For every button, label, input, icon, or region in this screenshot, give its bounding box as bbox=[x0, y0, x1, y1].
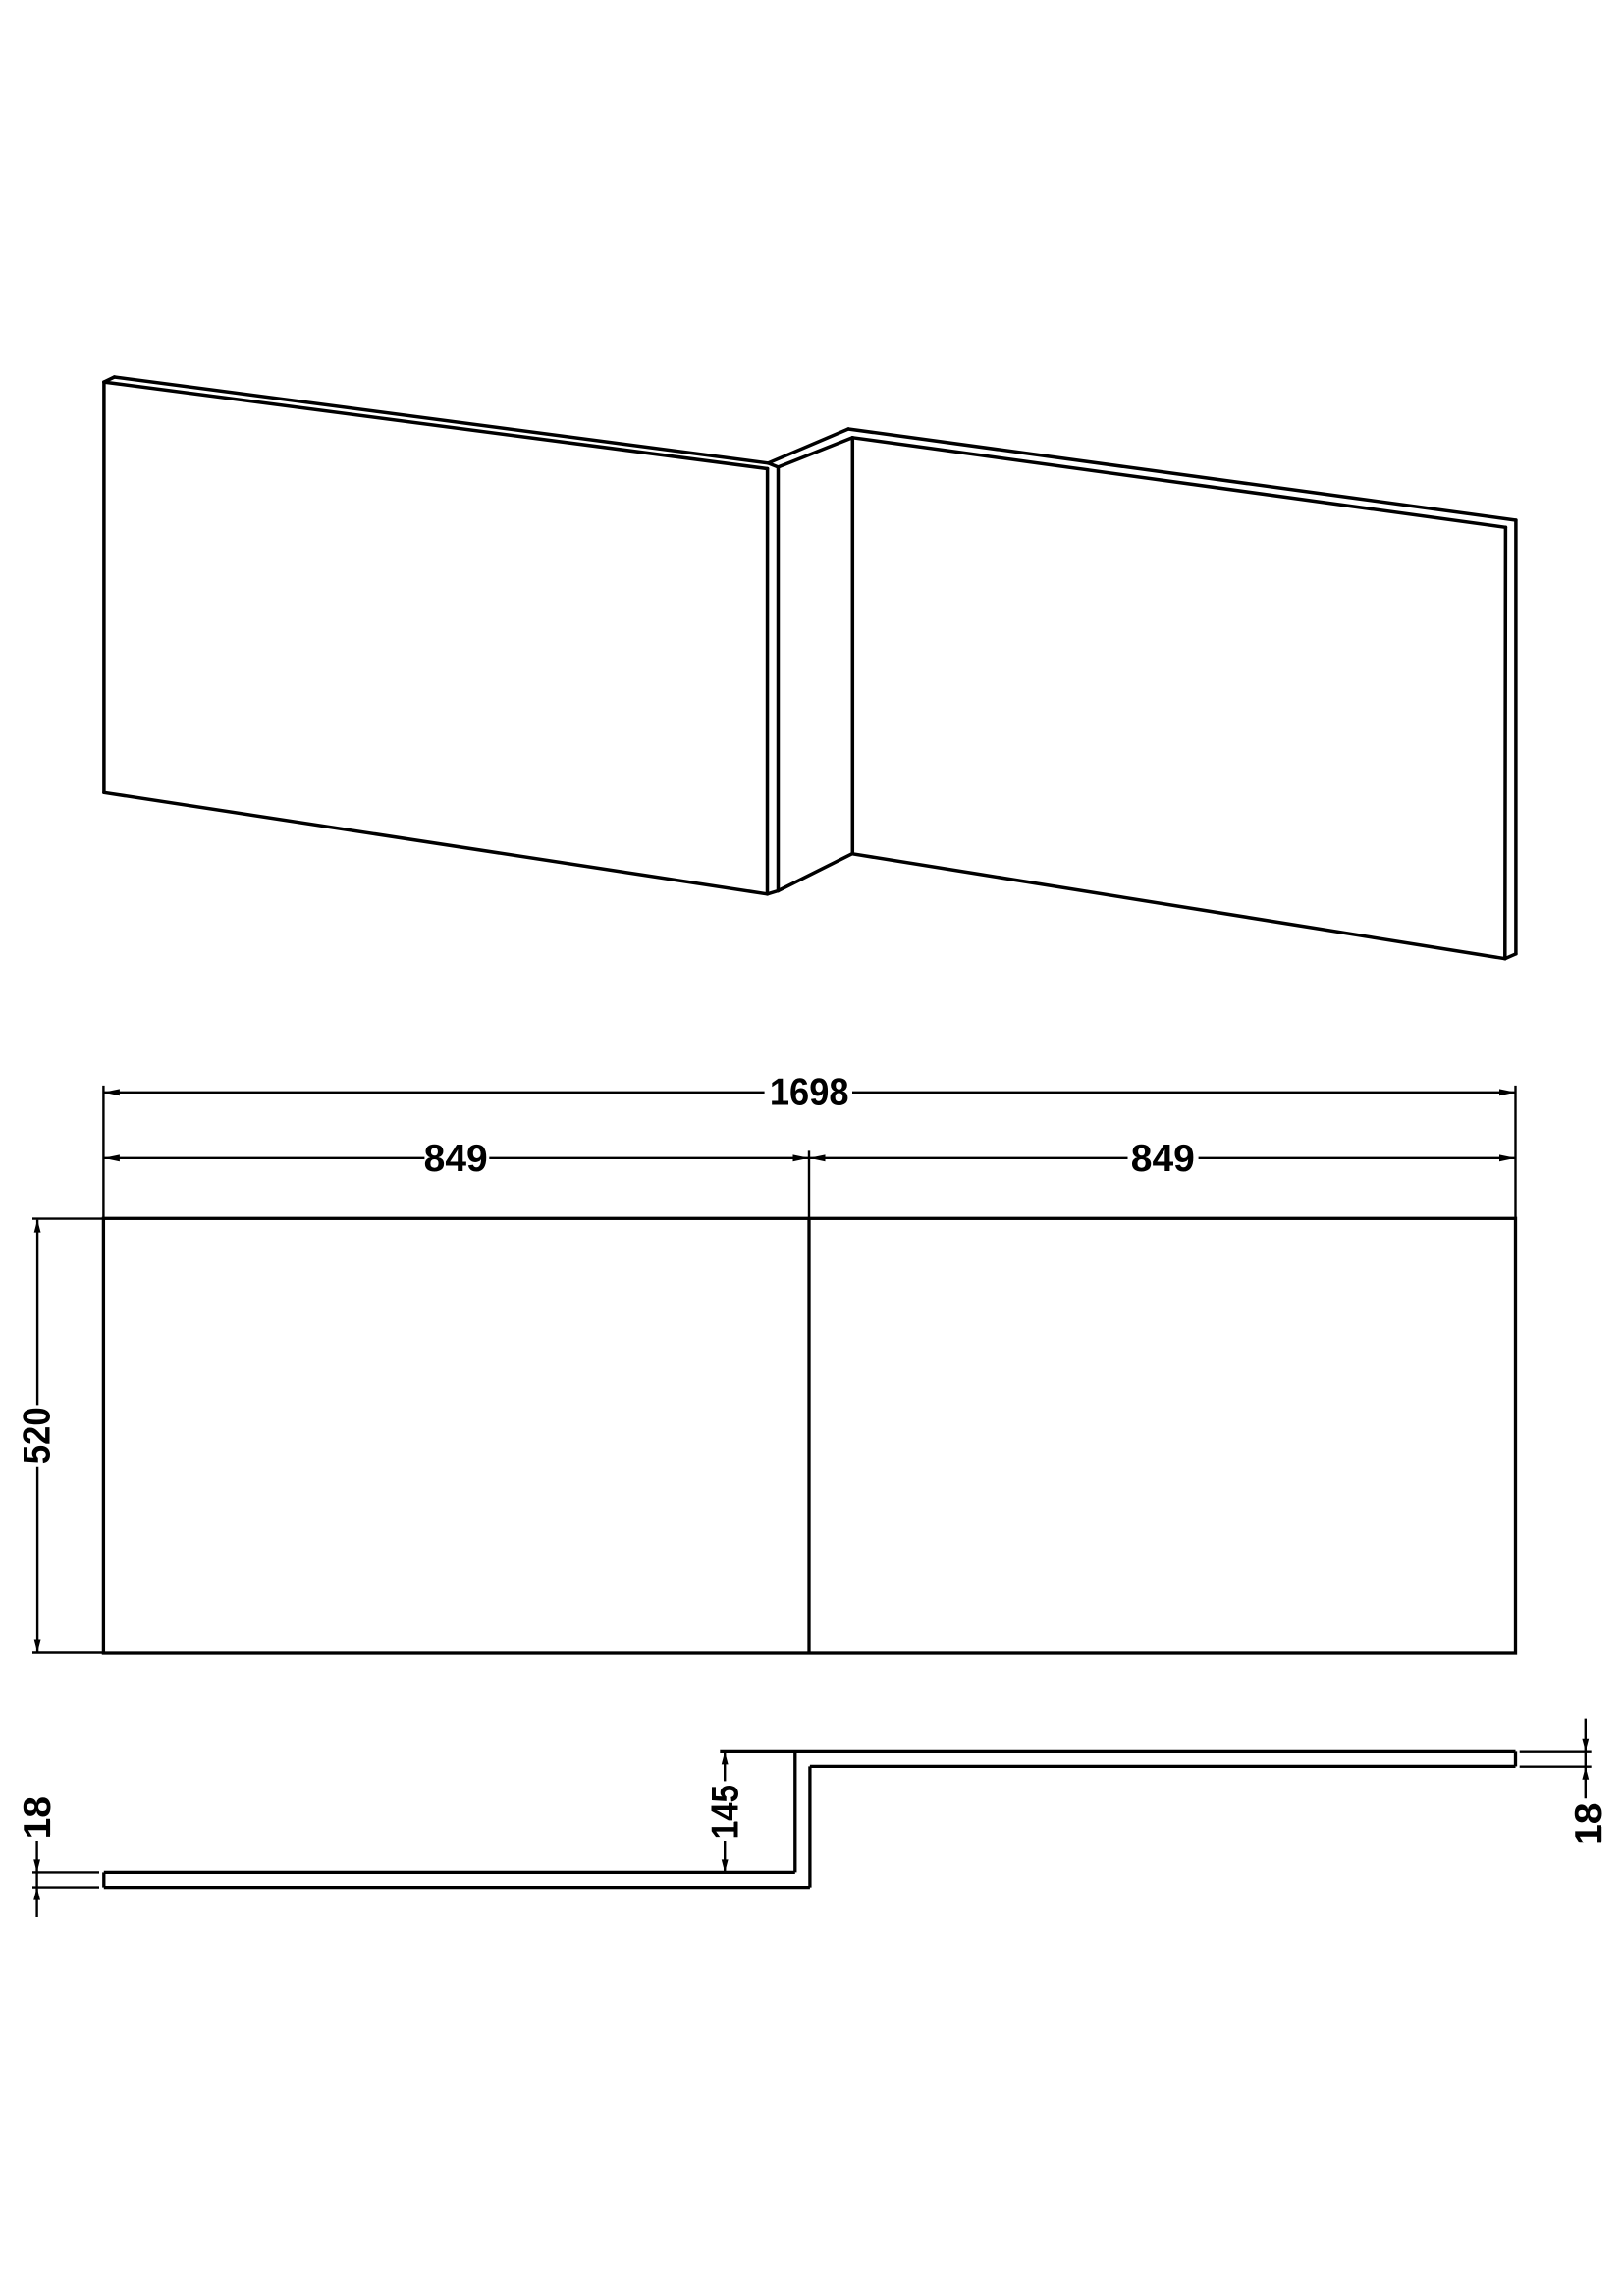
svg-text:18: 18 bbox=[1568, 1803, 1610, 1845]
svg-text:520: 520 bbox=[16, 1407, 58, 1464]
svg-text:145: 145 bbox=[703, 1785, 746, 1839]
svg-text:849: 849 bbox=[424, 1138, 488, 1180]
svg-text:1698: 1698 bbox=[770, 1070, 849, 1112]
svg-text:849: 849 bbox=[1131, 1138, 1195, 1180]
svg-text:18: 18 bbox=[17, 1796, 59, 1839]
